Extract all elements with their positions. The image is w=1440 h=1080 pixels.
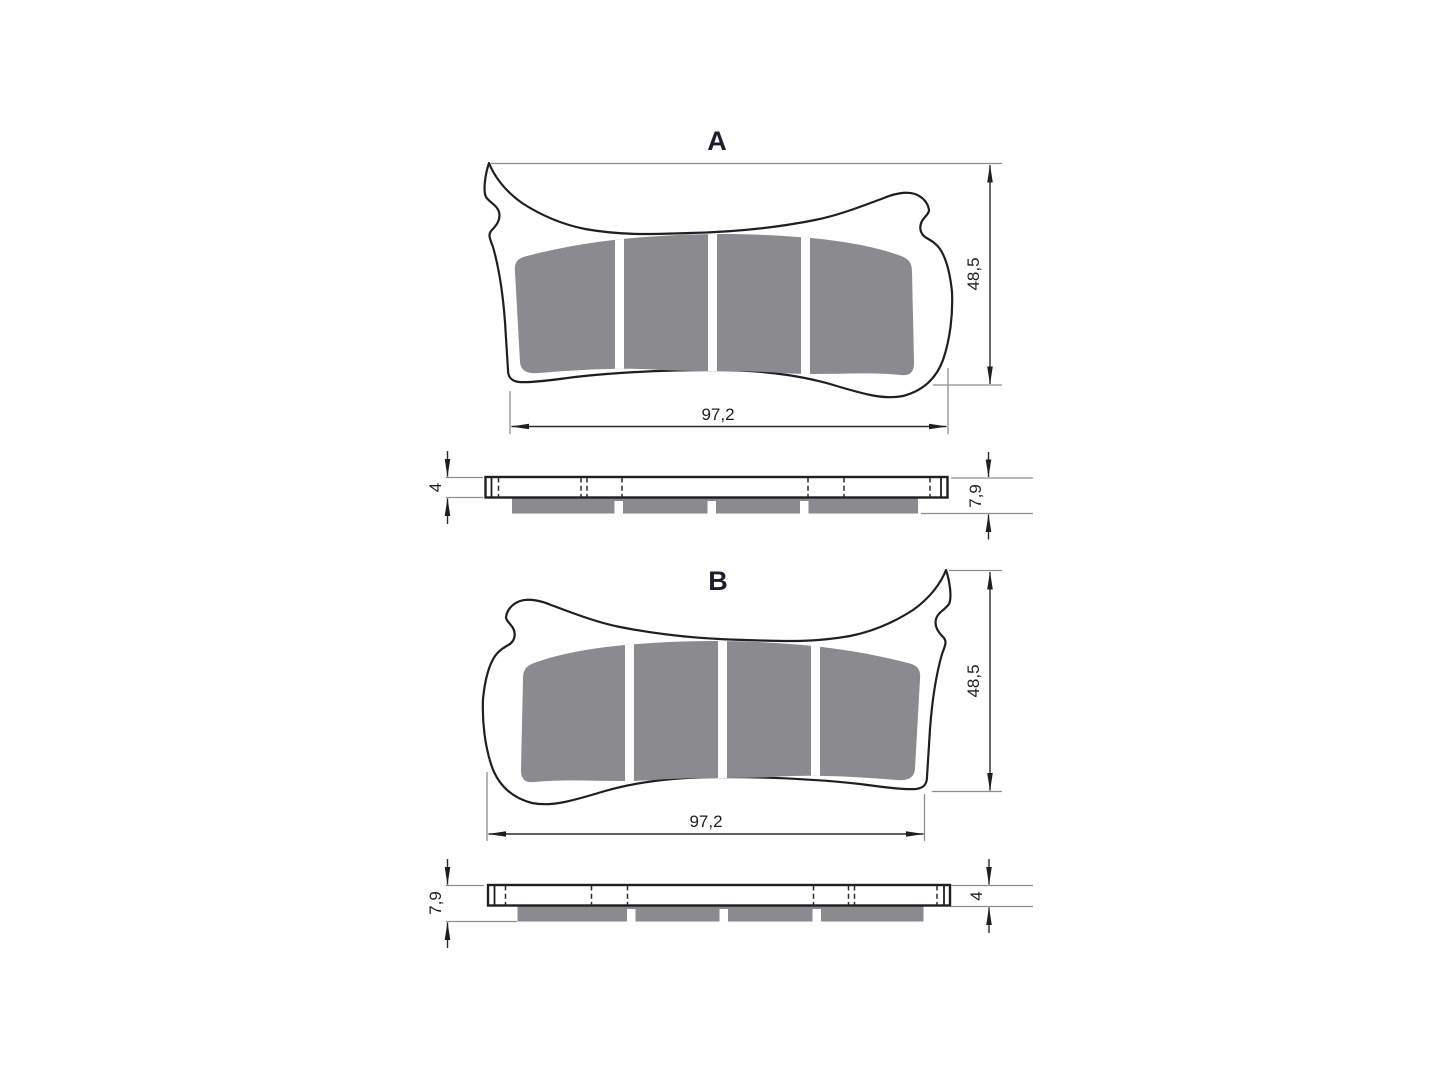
dim-plate-thickness-a: 4 — [426, 451, 483, 524]
pad-front-view-a — [485, 163, 953, 397]
pad-side-view-a — [486, 477, 948, 514]
view-b: B 48,5 97,2 — [483, 566, 1002, 841]
dim-total-thickness-b-text: 7,9 — [426, 891, 445, 915]
pad-side-view-b — [488, 885, 950, 922]
dim-plate-thickness-a-text: 4 — [426, 483, 445, 492]
side-view-b: 7,9 4 — [426, 859, 1033, 948]
brake-pad-drawing: A 48,5 97,2 4 — [0, 0, 1440, 1080]
view-a: A 48,5 97,2 — [485, 126, 1002, 434]
side-view-a: 4 7,9 — [426, 451, 1033, 540]
dim-height-b-text: 48,5 — [964, 664, 983, 697]
pad-front-view-b — [483, 570, 951, 804]
view-b-label: B — [708, 566, 728, 596]
dim-height-a-text: 48,5 — [964, 257, 983, 290]
dim-width-b-text: 97,2 — [689, 812, 722, 831]
dim-total-thickness-a-text: 7,9 — [966, 484, 985, 508]
view-a-label: A — [707, 126, 727, 156]
technical-drawing-canvas: A 48,5 97,2 4 — [0, 0, 1440, 1080]
dim-width-a-text: 97,2 — [701, 405, 734, 424]
dim-plate-thickness-b: 4 — [951, 859, 1033, 933]
dim-plate-thickness-b-text: 4 — [967, 891, 986, 900]
